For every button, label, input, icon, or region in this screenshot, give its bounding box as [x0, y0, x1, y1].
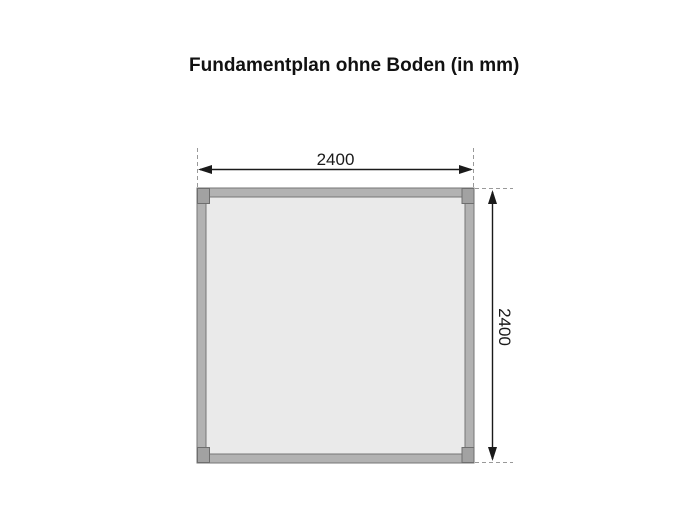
corner-post-bottom-right [462, 448, 474, 463]
foundation-plan-page: Fundamentplan ohne Boden (in mm) 2400 24… [0, 0, 700, 525]
width-dimension-label: 2400 [317, 150, 355, 169]
arrow-down-icon [488, 447, 497, 461]
corner-post-bottom-left [198, 448, 210, 463]
arrow-right-icon [459, 165, 473, 174]
corner-post-top-right [462, 189, 474, 204]
arrow-up-icon [488, 190, 497, 204]
foundation-interior [206, 197, 465, 454]
arrow-left-icon [198, 165, 212, 174]
height-dimension-label: 2400 [495, 308, 514, 346]
corner-post-top-left [198, 189, 210, 204]
foundation-plan-diagram: 2400 2400 [0, 0, 700, 525]
